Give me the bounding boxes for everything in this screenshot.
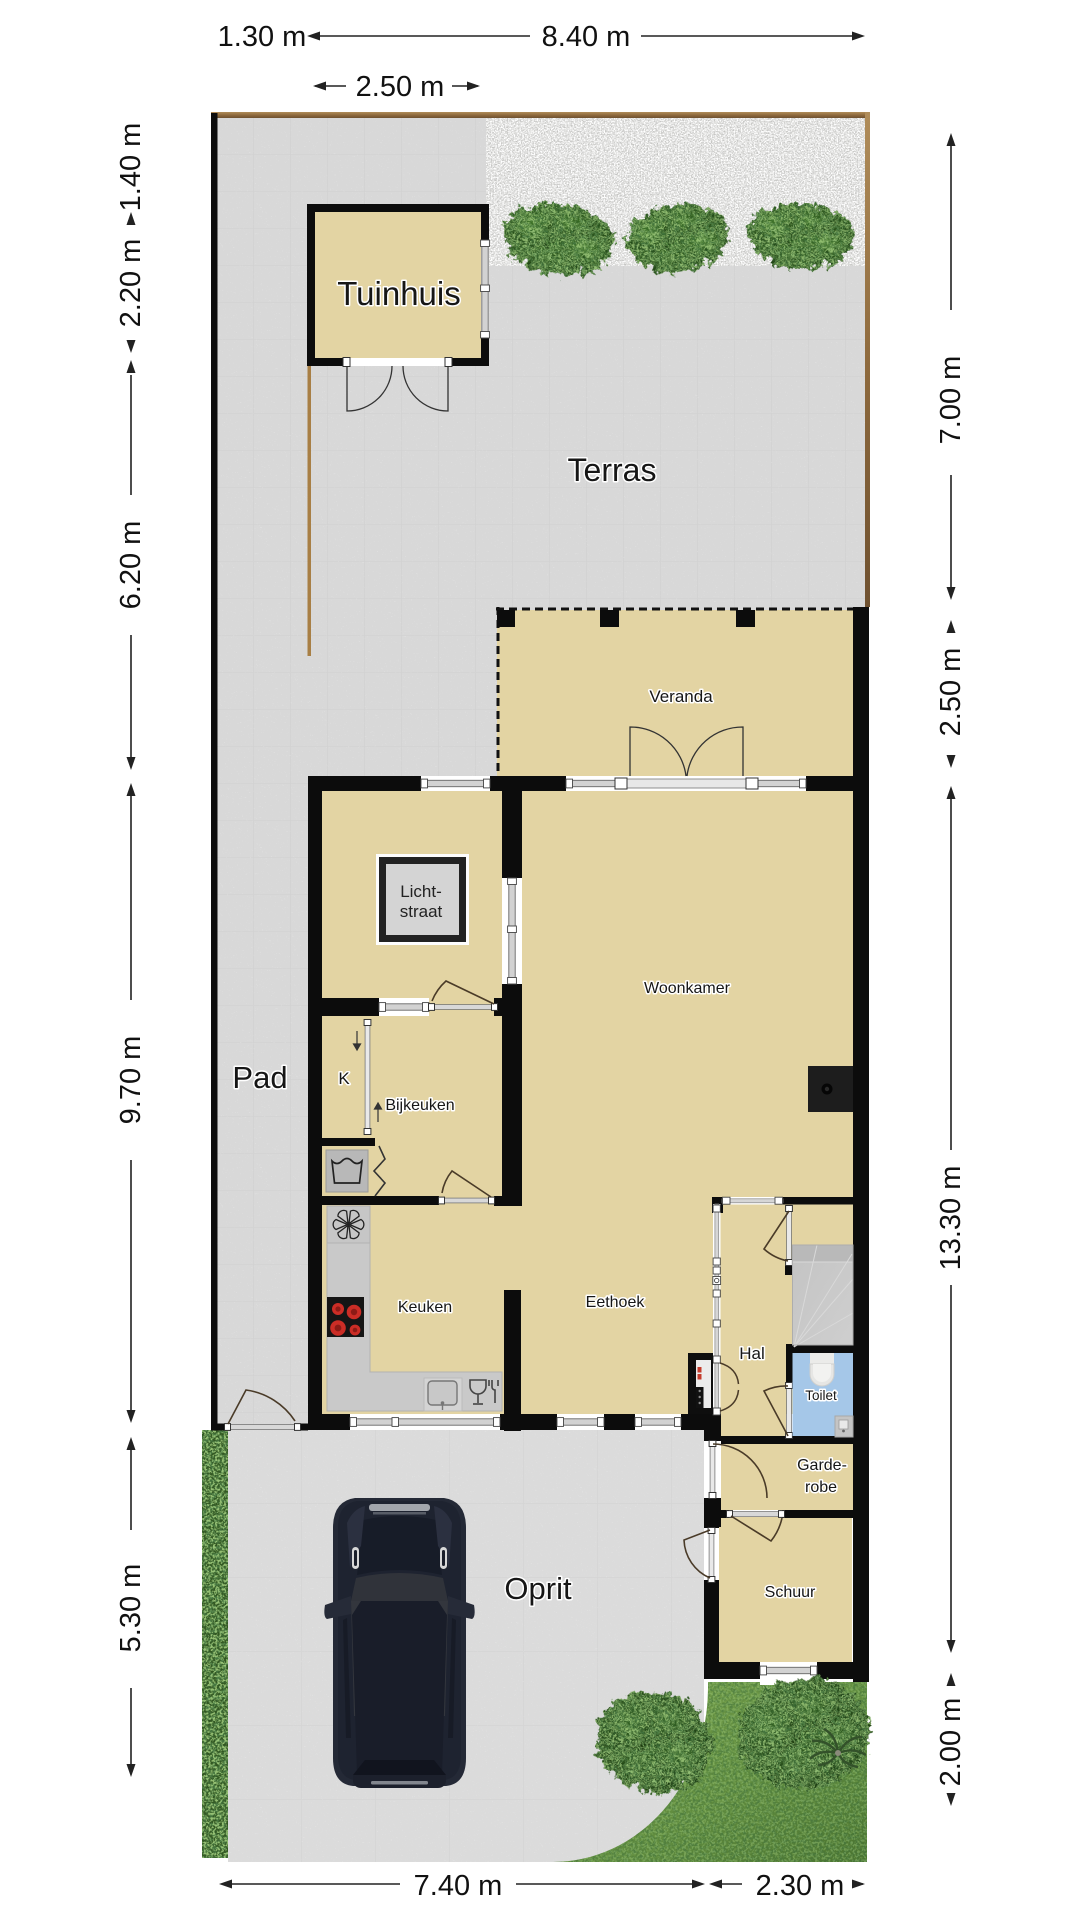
svg-text:Oprit: Oprit: [504, 1571, 572, 1606]
svg-text:straat: straat: [400, 902, 443, 921]
svg-text:1.30 m: 1.30 m: [218, 21, 307, 53]
svg-text:2.50 m: 2.50 m: [935, 648, 967, 737]
svg-text:2.20 m: 2.20 m: [115, 239, 147, 328]
svg-text:8.40 m: 8.40 m: [542, 21, 631, 53]
svg-text:9.70 m: 9.70 m: [115, 1036, 147, 1125]
svg-text:7.40 m: 7.40 m: [414, 1870, 503, 1902]
svg-text:Terras: Terras: [568, 452, 657, 488]
svg-text:Veranda: Veranda: [649, 687, 713, 706]
svg-text:1.40 m: 1.40 m: [115, 123, 147, 212]
svg-text:Bijkeuken: Bijkeuken: [385, 1097, 454, 1114]
svg-text:Toilet: Toilet: [805, 1388, 837, 1403]
svg-text:robe: robe: [805, 1479, 837, 1496]
svg-text:Keuken: Keuken: [398, 1299, 452, 1316]
svg-text:Tuinhuis: Tuinhuis: [337, 275, 461, 312]
svg-text:Pad: Pad: [232, 1060, 287, 1095]
svg-text:2.50 m: 2.50 m: [356, 71, 445, 103]
svg-text:5.30 m: 5.30 m: [115, 1564, 147, 1653]
svg-text:Schuur: Schuur: [765, 1584, 816, 1601]
svg-text:6.20 m: 6.20 m: [115, 521, 147, 610]
svg-text:K: K: [338, 1069, 350, 1088]
svg-text:Hal: Hal: [739, 1344, 765, 1363]
svg-text:Eethoek: Eethoek: [586, 1294, 646, 1311]
svg-text:7.00 m: 7.00 m: [935, 356, 967, 445]
svg-text:13.30 m: 13.30 m: [935, 1166, 967, 1271]
svg-text:Garde-: Garde-: [797, 1457, 847, 1474]
svg-text:2.30 m: 2.30 m: [756, 1870, 845, 1902]
svg-text:2.00 m: 2.00 m: [935, 1698, 967, 1787]
svg-text:Licht-: Licht-: [400, 882, 442, 901]
svg-text:Woonkamer: Woonkamer: [644, 980, 731, 997]
